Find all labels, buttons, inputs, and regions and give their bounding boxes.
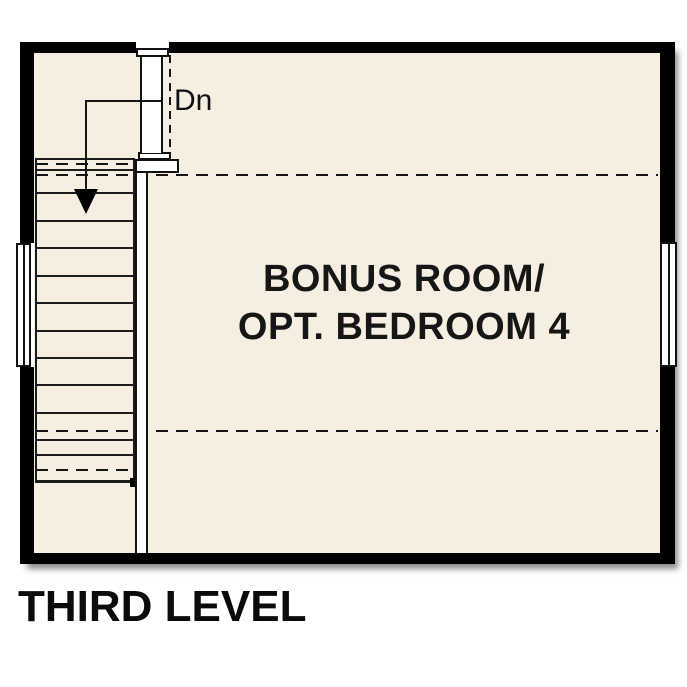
stair-left-edge bbox=[35, 158, 37, 483]
wall-right-upper-segment bbox=[660, 42, 675, 242]
stair-tread bbox=[36, 454, 133, 456]
ceiling-break-line-stairs-bottom bbox=[36, 469, 133, 471]
stair-tread bbox=[36, 357, 133, 359]
down-arrow-head bbox=[74, 189, 98, 214]
window-mullion bbox=[668, 244, 670, 365]
stair-rail bbox=[135, 164, 148, 553]
down-arrow-leader bbox=[85, 100, 163, 102]
dn-label: Dn bbox=[174, 84, 212, 117]
room-label-line1: BONUS ROOM/ bbox=[150, 255, 658, 303]
stairwell-dashed-edge bbox=[169, 55, 171, 159]
stairwell-opening bbox=[140, 55, 163, 153]
left-window bbox=[16, 243, 31, 367]
wall-top-left-segment bbox=[20, 42, 136, 53]
floor-plan: Dn BONUS ROOM/ OPT. BEDROOM 4 bbox=[20, 42, 675, 564]
right-window bbox=[660, 242, 677, 367]
stair-bottom-edge bbox=[36, 480, 133, 483]
wall-left-lower-segment bbox=[20, 367, 34, 553]
plan-title: THIRD LEVEL bbox=[18, 582, 306, 632]
ceiling-break-line-upper bbox=[36, 174, 658, 176]
wall-bottom bbox=[20, 553, 675, 564]
stair-tread bbox=[36, 439, 133, 441]
stairwell-opening-cap bbox=[136, 48, 169, 57]
room-label-line2: OPT. BEDROOM 4 bbox=[150, 303, 658, 351]
wall-left-upper-segment bbox=[20, 42, 34, 243]
stair-tread bbox=[36, 302, 133, 304]
window-mullion bbox=[23, 245, 25, 365]
stair-tread bbox=[36, 220, 133, 222]
down-arrow-shaft bbox=[85, 100, 87, 190]
stair-tread bbox=[36, 412, 133, 414]
wall-top-right-segment bbox=[169, 42, 675, 53]
wall-right-lower-segment bbox=[660, 367, 675, 553]
stair-landing-bar bbox=[138, 152, 171, 160]
ceiling-break-line-lower bbox=[36, 430, 658, 432]
stair-tread bbox=[36, 384, 133, 386]
room-label: BONUS ROOM/ OPT. BEDROOM 4 bbox=[150, 255, 658, 351]
stair-tread bbox=[36, 330, 133, 332]
stair-tread bbox=[36, 247, 133, 249]
stair-tread bbox=[36, 275, 133, 277]
stair-landing-cap bbox=[135, 159, 179, 173]
